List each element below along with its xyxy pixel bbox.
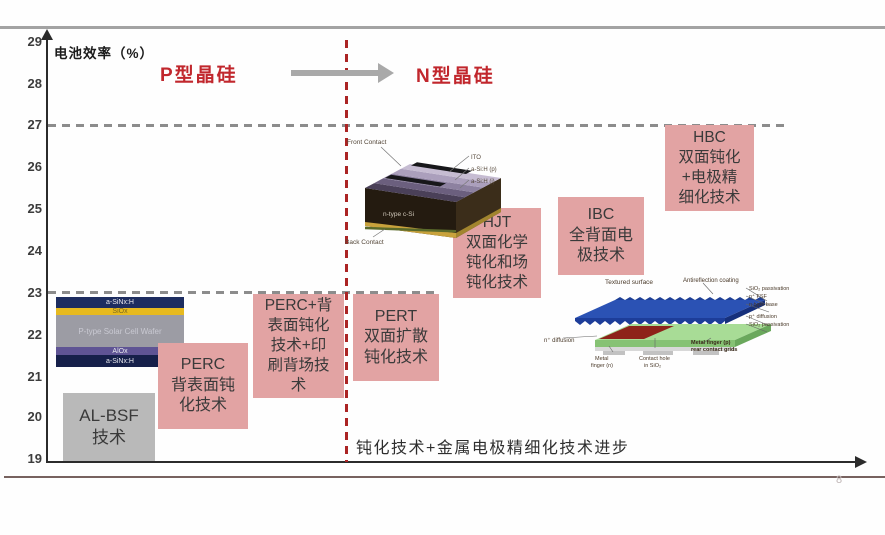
ibc-arc-label: Antireflection coating [683, 278, 739, 284]
ibc-n-diff-label: n⁺ diffusion [544, 337, 574, 344]
tech-box-hbc: HBC 双面钝化 +电极精 细化技术 [665, 125, 754, 211]
y-tick-27: 27 [10, 117, 42, 132]
tech-box-line: 钝化技术 [466, 273, 528, 293]
tech-box-line: IBC [588, 205, 615, 225]
tech-box-line: 双面钝化 [678, 148, 740, 168]
ibc-cell-structure-image: Textured surface Antireflection coating … [543, 274, 803, 374]
tech-box-line: AL-BSF [79, 405, 139, 427]
tech-box-line: 细化技术 [678, 188, 740, 208]
y-axis-line [46, 38, 48, 462]
hjt-body-label: n-type c-Si [383, 211, 414, 218]
tech-box-line: 双面扩散 [364, 327, 428, 347]
tech-box-pert: PERT 双面扩散 钝化技术 [353, 294, 439, 381]
x-axis-annotation: 钝化技术+金属电极精细化技术进步 [356, 434, 629, 458]
tech-box-line: 背表面钝 [171, 376, 235, 396]
tech-box-line: 表面钝化 [267, 316, 329, 336]
hjt-asih-p-label: a-Si:H (p) [471, 167, 497, 173]
y-tick-21: 21 [10, 369, 42, 384]
tech-box-line: 钝化技术 [364, 348, 428, 368]
ibc-sio2-bottom-label: SiO₂ passivation [749, 322, 789, 328]
y-axis-title: 电池效率（%） [54, 42, 154, 62]
tech-box-line: 技术 [92, 427, 126, 449]
layer-siox: SiOx [56, 308, 184, 315]
ibc-metal-n-label-1: Metal [595, 356, 608, 362]
y-tick-23: 23 [10, 285, 42, 300]
ibc-metal-p-label-2: rear contact grids [691, 347, 737, 353]
tech-box-ibc: IBC 全背面电 极技术 [558, 197, 644, 275]
y-tick-24: 24 [10, 243, 42, 258]
y-tick-19: 19 [10, 451, 42, 466]
ibc-metal-n-label-2: finger (n) [591, 363, 613, 369]
top-border-line [0, 26, 885, 29]
hjt-ito-label: ITO [471, 155, 481, 161]
tech-box-perc: PERC 背表面钝 化技术 [158, 343, 248, 429]
tech-box-line: +电极精 [682, 168, 738, 188]
ibc-contact-hole-label-2: in SiO₂ [644, 363, 661, 369]
transition-arrow [291, 70, 379, 76]
hjt-asih-i-label: a-Si:H (i) [471, 179, 495, 185]
y-tick-20: 20 [10, 409, 42, 424]
tech-box-line: PERT [375, 307, 417, 327]
tech-box-line: 全背面电 [569, 226, 633, 246]
x-axis-arrow-icon [855, 456, 867, 468]
chart-canvas: 电池效率（%） 29 28 27 26 25 24 23 22 21 20 19… [0, 0, 885, 535]
y-tick-28: 28 [10, 76, 42, 91]
x-axis-line [46, 461, 858, 463]
tech-box-line: 极技术 [577, 246, 625, 266]
y-axis-arrow-icon [41, 29, 53, 40]
tech-box-line: HBC [693, 128, 726, 148]
y-tick-29: 29 [10, 34, 42, 49]
ibc-base-label: n-type base [749, 302, 778, 308]
tech-box-line: 钝化和场 [466, 253, 528, 273]
ibc-metal-p-label-1: Metal finger (p) [691, 340, 731, 346]
region-label-p-type: P型晶硅 [160, 60, 238, 87]
bottom-border-line [4, 476, 885, 478]
tech-box-line: PERC [181, 355, 225, 375]
region-label-n-type: N型晶硅 [416, 61, 495, 88]
tech-box-perc-plus: PERC+背 表面钝化 技术+印 刷背场技 术 [253, 294, 344, 398]
ibc-sio2-top-label: SiO₂ passivation [749, 286, 789, 292]
y-tick-22: 22 [10, 327, 42, 342]
y-tick-26: 26 [10, 159, 42, 174]
tech-box-line: 化技术 [179, 396, 227, 416]
ibc-fsf-label: n⁺ FSF [749, 293, 768, 300]
layer-a-sinx-top: a-SiNx:H [56, 297, 184, 308]
hjt-cell-structure-image: n-type c-Si Front Contact ITO a-Si:H (p)… [343, 132, 533, 250]
tech-box-line: 术 [291, 376, 307, 396]
hjt-back-contact-label: Back Contact [345, 239, 384, 246]
ibc-contact-hole-label-1: Contact hole [639, 356, 670, 362]
ibc-textured-surface-label: Textured surface [605, 279, 653, 286]
tech-box-line: PERC+背 [265, 296, 333, 316]
tech-box-al-bsf: AL-BSF 技术 [63, 393, 155, 461]
transition-arrow-head-icon [378, 63, 394, 83]
p-n-divider-dashed-line [345, 40, 348, 462]
tech-box-line: 刷背场技 [267, 356, 329, 376]
tech-box-line: 技术+印 [271, 336, 327, 356]
y-tick-25: 25 [10, 201, 42, 216]
hjt-front-contact-label: Front Contact [347, 139, 387, 146]
ibc-p-diff-label: p⁺ diffusion [749, 313, 777, 320]
page-number: 8 [836, 474, 842, 486]
